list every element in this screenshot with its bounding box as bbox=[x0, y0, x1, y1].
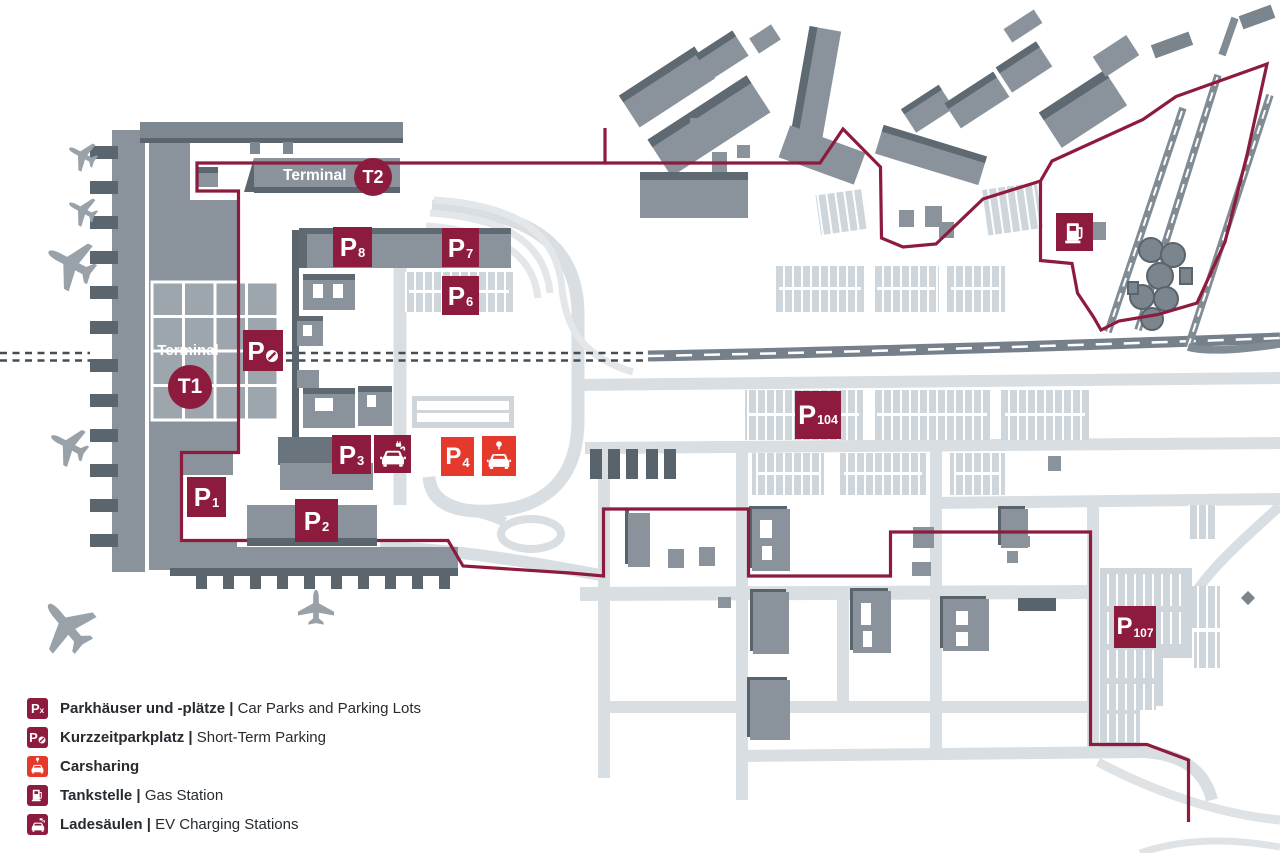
gas-station-icon bbox=[27, 785, 48, 806]
legend-row-carsharing: Carsharing bbox=[27, 755, 421, 777]
badge-p3: P3 bbox=[332, 435, 371, 474]
carsharing-icon bbox=[482, 436, 516, 476]
airplane-icon bbox=[42, 419, 95, 472]
legend-row-ev-charging: Ladesäulen | EV Charging Stations bbox=[27, 813, 421, 835]
terminal-t1-label: Terminal bbox=[148, 342, 228, 359]
airport-parking-map: Terminal T1 Terminal T2 P P1 P2 P3 P4 P6… bbox=[0, 0, 1280, 853]
ev-charging-icon bbox=[374, 435, 411, 473]
car-park-badge-icon: Px bbox=[27, 698, 48, 719]
badge-p107: P107 bbox=[1114, 606, 1156, 648]
short-term-dial-icon bbox=[265, 349, 279, 363]
badge-p7: P7 bbox=[442, 228, 479, 267]
carsharing-icon bbox=[27, 756, 48, 777]
airplane-icon bbox=[27, 586, 106, 665]
short-term-badge-icon: P bbox=[27, 727, 48, 748]
ev-charging-icon bbox=[27, 814, 48, 835]
terminal-t1-badge: T1 bbox=[168, 365, 212, 409]
badge-p6: P6 bbox=[442, 276, 479, 315]
legend-row-car-parks: Px Parkhäuser und -plätze | Car Parks an… bbox=[27, 697, 421, 719]
parking-strip-white bbox=[412, 396, 514, 428]
badge-p1: P1 bbox=[187, 477, 226, 517]
badge-po-short-term: P bbox=[243, 330, 283, 371]
badge-p4: P4 bbox=[441, 437, 474, 476]
legend-row-gas-station: Tankstelle | Gas Station bbox=[27, 784, 421, 806]
legend: Px Parkhäuser und -plätze | Car Parks an… bbox=[27, 697, 421, 835]
terminal-t2-label: Terminal bbox=[283, 167, 346, 185]
badge-p8: P8 bbox=[333, 227, 372, 267]
badge-p2: P2 bbox=[295, 499, 338, 542]
small-cube-building bbox=[197, 167, 218, 187]
airplane-icon bbox=[298, 590, 334, 625]
badge-p104: P104 bbox=[795, 391, 841, 439]
terminal-south-pier bbox=[170, 547, 458, 589]
short-term-dial-icon bbox=[38, 736, 46, 744]
gas-station-icon bbox=[1056, 213, 1093, 251]
legend-row-short-term: P Kurzzeitparkplatz | Short-Term Parking bbox=[27, 726, 421, 748]
long-building-north bbox=[640, 172, 748, 218]
terminal-t2-badge: T2 bbox=[354, 158, 392, 196]
